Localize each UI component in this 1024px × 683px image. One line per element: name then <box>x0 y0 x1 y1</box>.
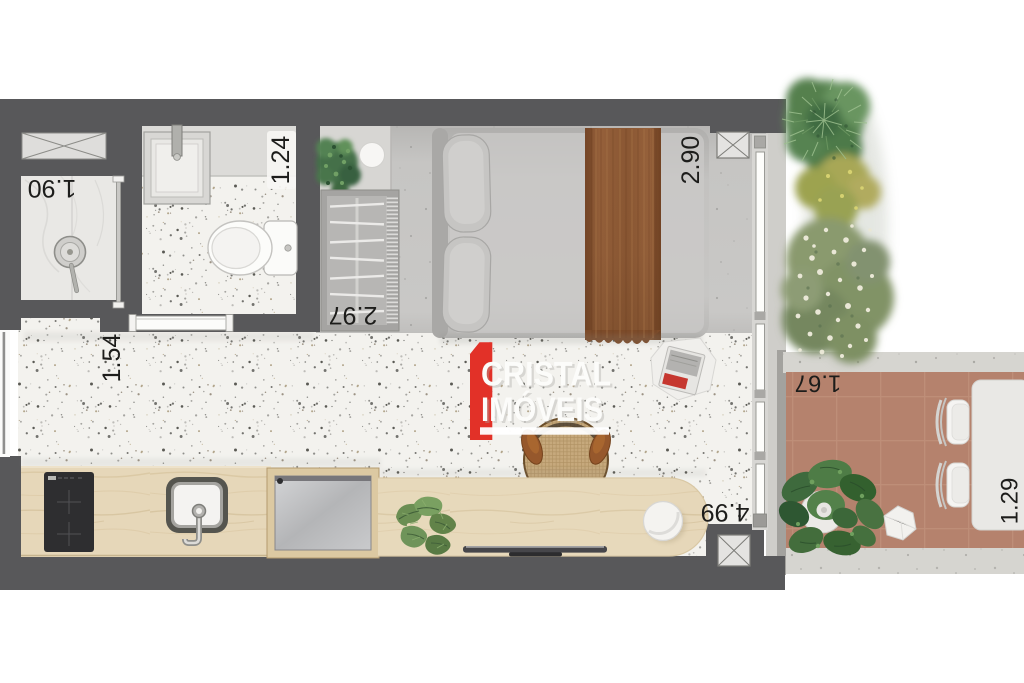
svg-text:CRISTAL: CRISTAL <box>481 355 611 393</box>
svg-text:2.90: 2.90 <box>677 136 705 185</box>
svg-text:1.54: 1.54 <box>98 334 126 383</box>
svg-text:IMÓVEIS: IMÓVEIS <box>481 391 603 429</box>
svg-text:4.99: 4.99 <box>701 498 750 526</box>
svg-text:1.29: 1.29 <box>997 478 1024 525</box>
svg-text:1.90: 1.90 <box>28 174 77 202</box>
svg-text:2.97: 2.97 <box>329 301 378 329</box>
svg-text:1.67: 1.67 <box>795 370 842 397</box>
svg-text:1.24: 1.24 <box>267 136 295 185</box>
